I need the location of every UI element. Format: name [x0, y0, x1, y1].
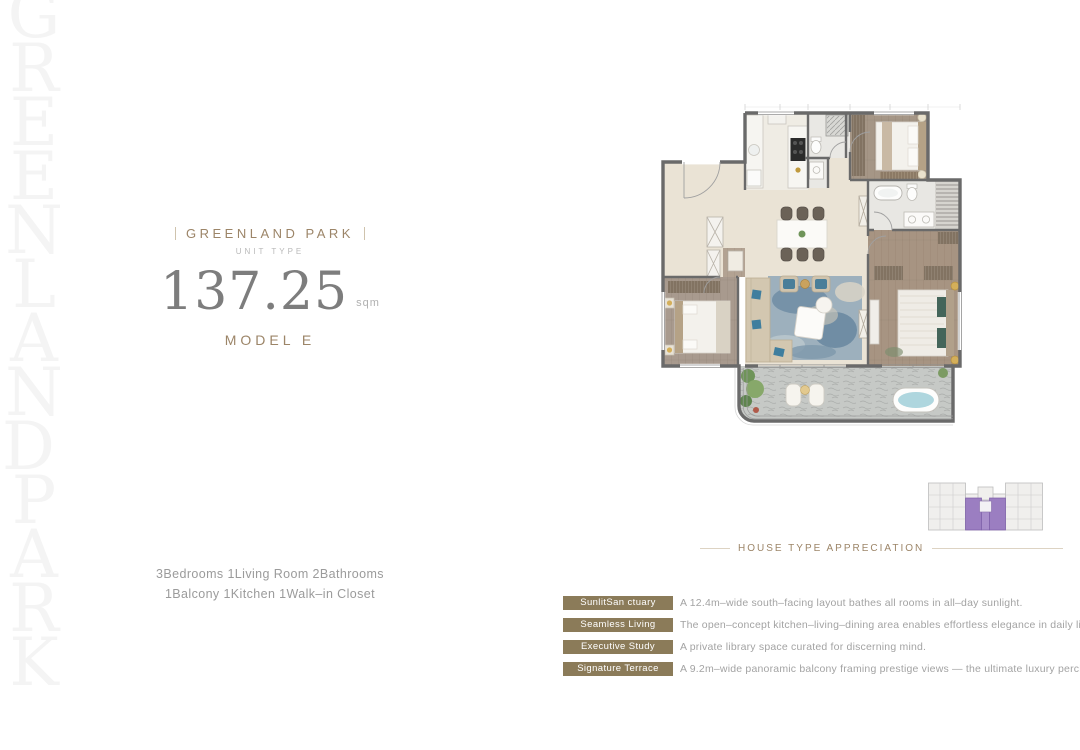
bedroom-top-right [852, 114, 926, 180]
pillow [908, 148, 918, 166]
tv-cabinet [870, 300, 879, 344]
lounge-chair [786, 384, 801, 406]
summary-line-1: 3Bedrooms 1Living Room 2Bathrooms [100, 564, 440, 584]
table-plant [799, 231, 806, 238]
bed-runner [882, 122, 892, 170]
dimension-ticks [745, 104, 960, 110]
balcony-plant [740, 395, 752, 407]
floor-plan [650, 100, 980, 450]
living-room [746, 276, 865, 362]
caption-right-line [932, 548, 1063, 549]
blue-pillow [751, 289, 761, 299]
unit-type-label: UNIT TYPE [120, 247, 420, 256]
kitchen-brass-item [795, 167, 800, 172]
brand-right-bar [364, 227, 365, 240]
blue-pillow [752, 319, 762, 329]
key-plan-highlight [966, 498, 1006, 530]
kitchen-shelf [768, 114, 786, 124]
bed-throw [716, 301, 730, 353]
key-plan-left-wing [929, 483, 966, 530]
summary-line-2: 1Balcony 1Kitchen 1Walk–in Closet [100, 584, 440, 604]
balcony-plant [746, 380, 764, 398]
feature-row: SunlitSan ctuary A 12.4m–wide south–faci… [563, 596, 1063, 610]
brand-name: GREENLAND PARK [186, 226, 354, 241]
kitchen-sink [749, 145, 760, 156]
master-pillow [937, 297, 946, 317]
key-plan-caption-row: HOUSE TYPE APPRECIATION [700, 543, 1063, 554]
shoe-cabinet [728, 251, 743, 271]
armchair-cushion [783, 279, 795, 289]
master-lamp [951, 282, 959, 290]
feature-tag: SunlitSan ctuary [563, 596, 673, 610]
area-value: 137.25 [160, 266, 348, 318]
shower-texture [827, 116, 847, 135]
feature-row: Signature Terrace A 9.2m–wide panoramic … [563, 662, 1063, 676]
feature-row: Executive Study A private library space … [563, 640, 1063, 654]
headboard-left [675, 301, 683, 353]
feature-desc: A 9.2m–wide panoramic balcony framing pr… [680, 663, 1080, 675]
area-row: 137.25 sqm [120, 266, 420, 318]
lounge-chair [809, 384, 824, 406]
lamp [667, 300, 672, 305]
key-plan-svg [927, 479, 1044, 538]
fridge [747, 170, 761, 186]
armchair-cushion [815, 279, 827, 289]
title-block: GREENLAND PARK UNIT TYPE 137.25 sqm MODE… [120, 226, 420, 348]
feature-tag: Signature Terrace [563, 662, 673, 676]
spa-water [898, 392, 934, 408]
dining-area [777, 207, 827, 261]
key-plan-caption: HOUSE TYPE APPRECIATION [738, 543, 924, 554]
headboard-top-right [918, 122, 926, 170]
master-plant [885, 347, 903, 357]
master-pillow [937, 328, 946, 348]
feature-desc: The open–concept kitchen–living–dining a… [680, 619, 1080, 631]
model-name: MODEL E [120, 332, 420, 348]
pillow [908, 126, 918, 144]
pillow [683, 340, 697, 349]
lamp [667, 347, 672, 352]
brand-left-bar [175, 227, 176, 240]
feature-tag: Seamless Living [563, 618, 673, 632]
pillow [683, 305, 697, 314]
vanity-sink [810, 162, 824, 179]
feature-tag: Executive Study [563, 640, 673, 654]
feature-desc: A 12.4m–wide south–facing layout bathes … [680, 597, 1023, 609]
unit-summary: 3Bedrooms 1Living Room 2Bathrooms 1Balco… [100, 564, 440, 604]
bathtub-basin [878, 189, 898, 198]
feature-list: SunlitSan ctuary A 12.4m–wide south–faci… [563, 596, 1063, 684]
side-table [801, 280, 810, 289]
bedside-lamp [918, 171, 926, 179]
area-unit: sqm [356, 297, 380, 318]
round-table [816, 297, 832, 313]
balcony-plant [938, 368, 948, 378]
master-lamp [951, 356, 959, 364]
key-plan-right-wing [1006, 483, 1043, 530]
brochure-page: { "watermark": { "text": "GREENLAND PARK… [0, 0, 1080, 750]
toilet-right [907, 188, 917, 201]
brand-row: GREENLAND PARK [120, 226, 420, 241]
key-plan [927, 479, 1044, 538]
cooktop [791, 138, 806, 161]
toilet [811, 141, 821, 154]
feature-desc: A private library space curated for disc… [680, 641, 926, 653]
caption-left-line [700, 548, 730, 549]
floor-plan-svg [650, 100, 980, 450]
feature-row: Seamless Living The open–concept kitchen… [563, 618, 1063, 632]
master-headboard [946, 290, 954, 356]
vertical-watermark: GREENLAND PARK [2, 0, 66, 690]
balcony-table [801, 386, 810, 395]
balcony-flower [753, 407, 759, 413]
